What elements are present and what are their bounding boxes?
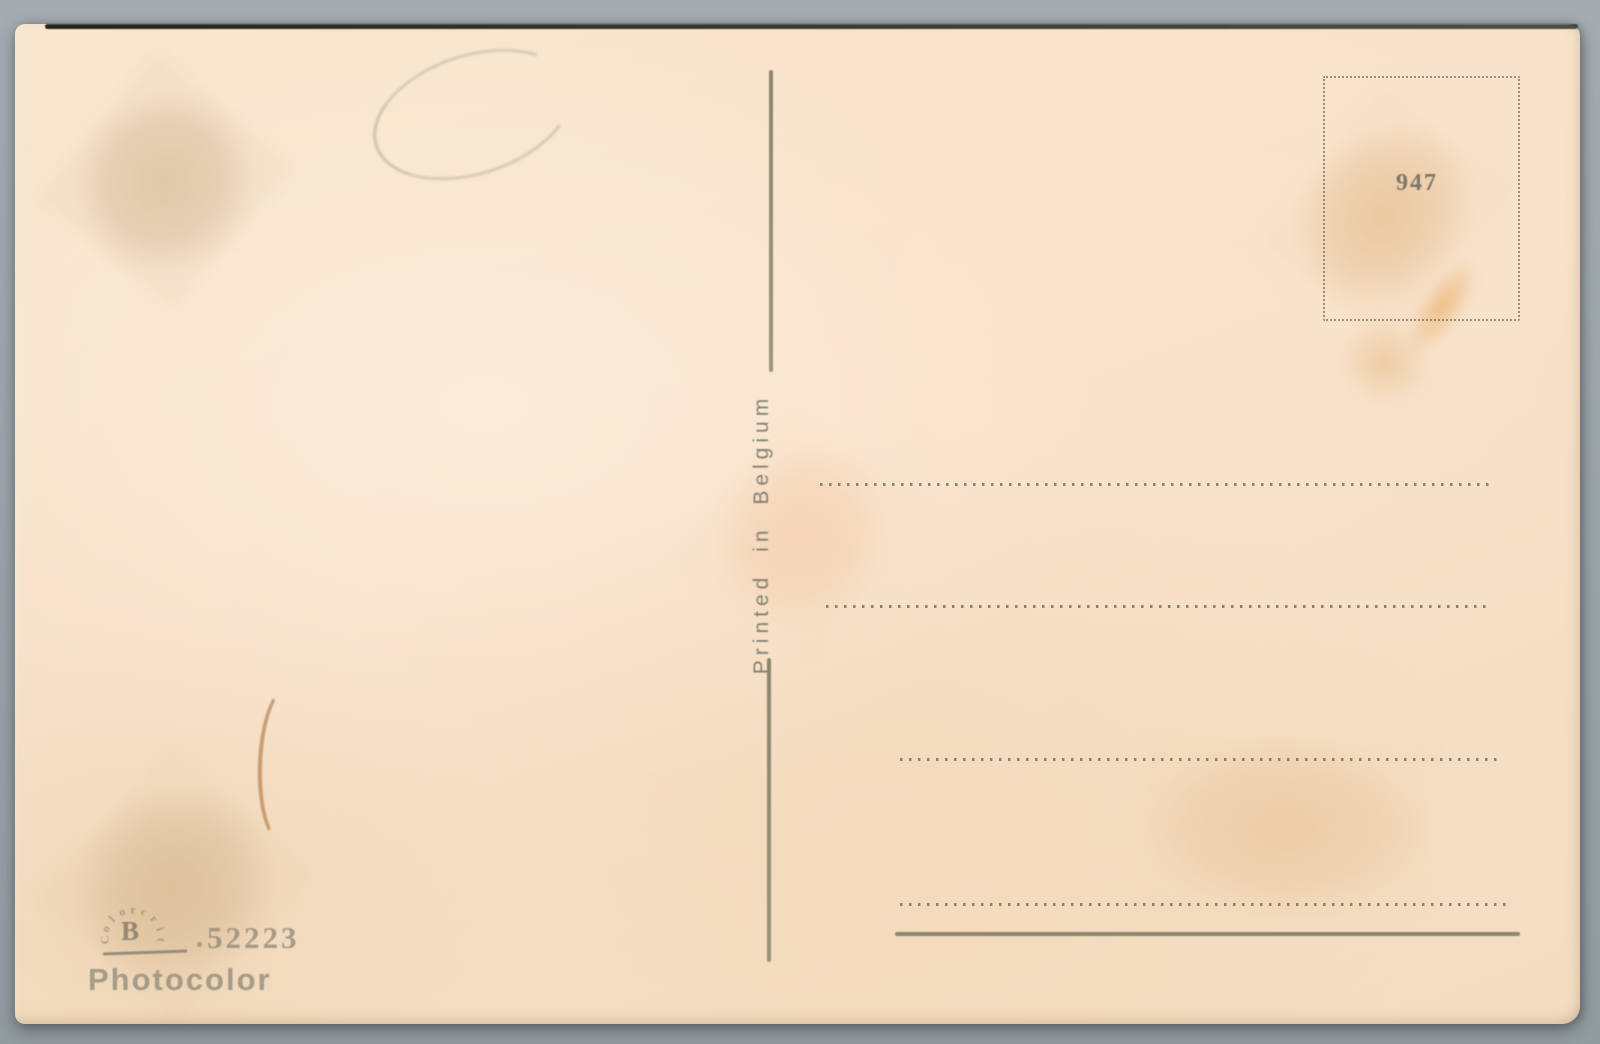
publisher-name: Photocolor (88, 962, 272, 998)
card-corner-shadow-top-right (1553, 25, 1581, 65)
card-corner-smudge-bottom-right (1518, 982, 1578, 1022)
publisher-arc-letter: C (97, 935, 113, 945)
publisher-mark: Colorcrit B 52223 Photocolor (73, 904, 353, 1014)
divider-line-bottom (767, 658, 771, 962)
postcard-back: 947 Printed in Belgium Colorcrit B 52223… (15, 24, 1580, 1024)
printed-in-belgium-label: Printed in Belgium (750, 384, 776, 684)
stamp-box (1323, 76, 1520, 321)
card-top-edge-shadow (45, 24, 1578, 29)
address-baseline (895, 932, 1520, 936)
tape-stain-top-left (35, 51, 295, 312)
address-line-4 (900, 903, 1507, 906)
rust-curve-mark (255, 685, 314, 845)
publisher-serial-number: 52223 (207, 920, 300, 956)
address-line-1 (820, 483, 1492, 486)
publisher-arc-letter: l (106, 913, 119, 926)
pencil-scribble (356, 25, 589, 204)
publisher-arc-letter: o (98, 924, 114, 935)
divider-line-top (769, 70, 773, 372)
tape-stain-center (671, 404, 927, 665)
publisher-arc-letter: c (139, 904, 150, 920)
publisher-arc-letter: t (153, 938, 168, 943)
tape-stain-bottom-right (1140, 734, 1433, 919)
address-line-2 (826, 605, 1488, 608)
publisher-separator-dot (197, 942, 202, 947)
publisher-arc-letter: r (146, 912, 161, 926)
publisher-monogram: B (121, 916, 139, 947)
publisher-arc-letter: i (152, 925, 167, 933)
stamp-box-number: 947 (1381, 170, 1453, 197)
address-line-3 (900, 758, 1502, 761)
